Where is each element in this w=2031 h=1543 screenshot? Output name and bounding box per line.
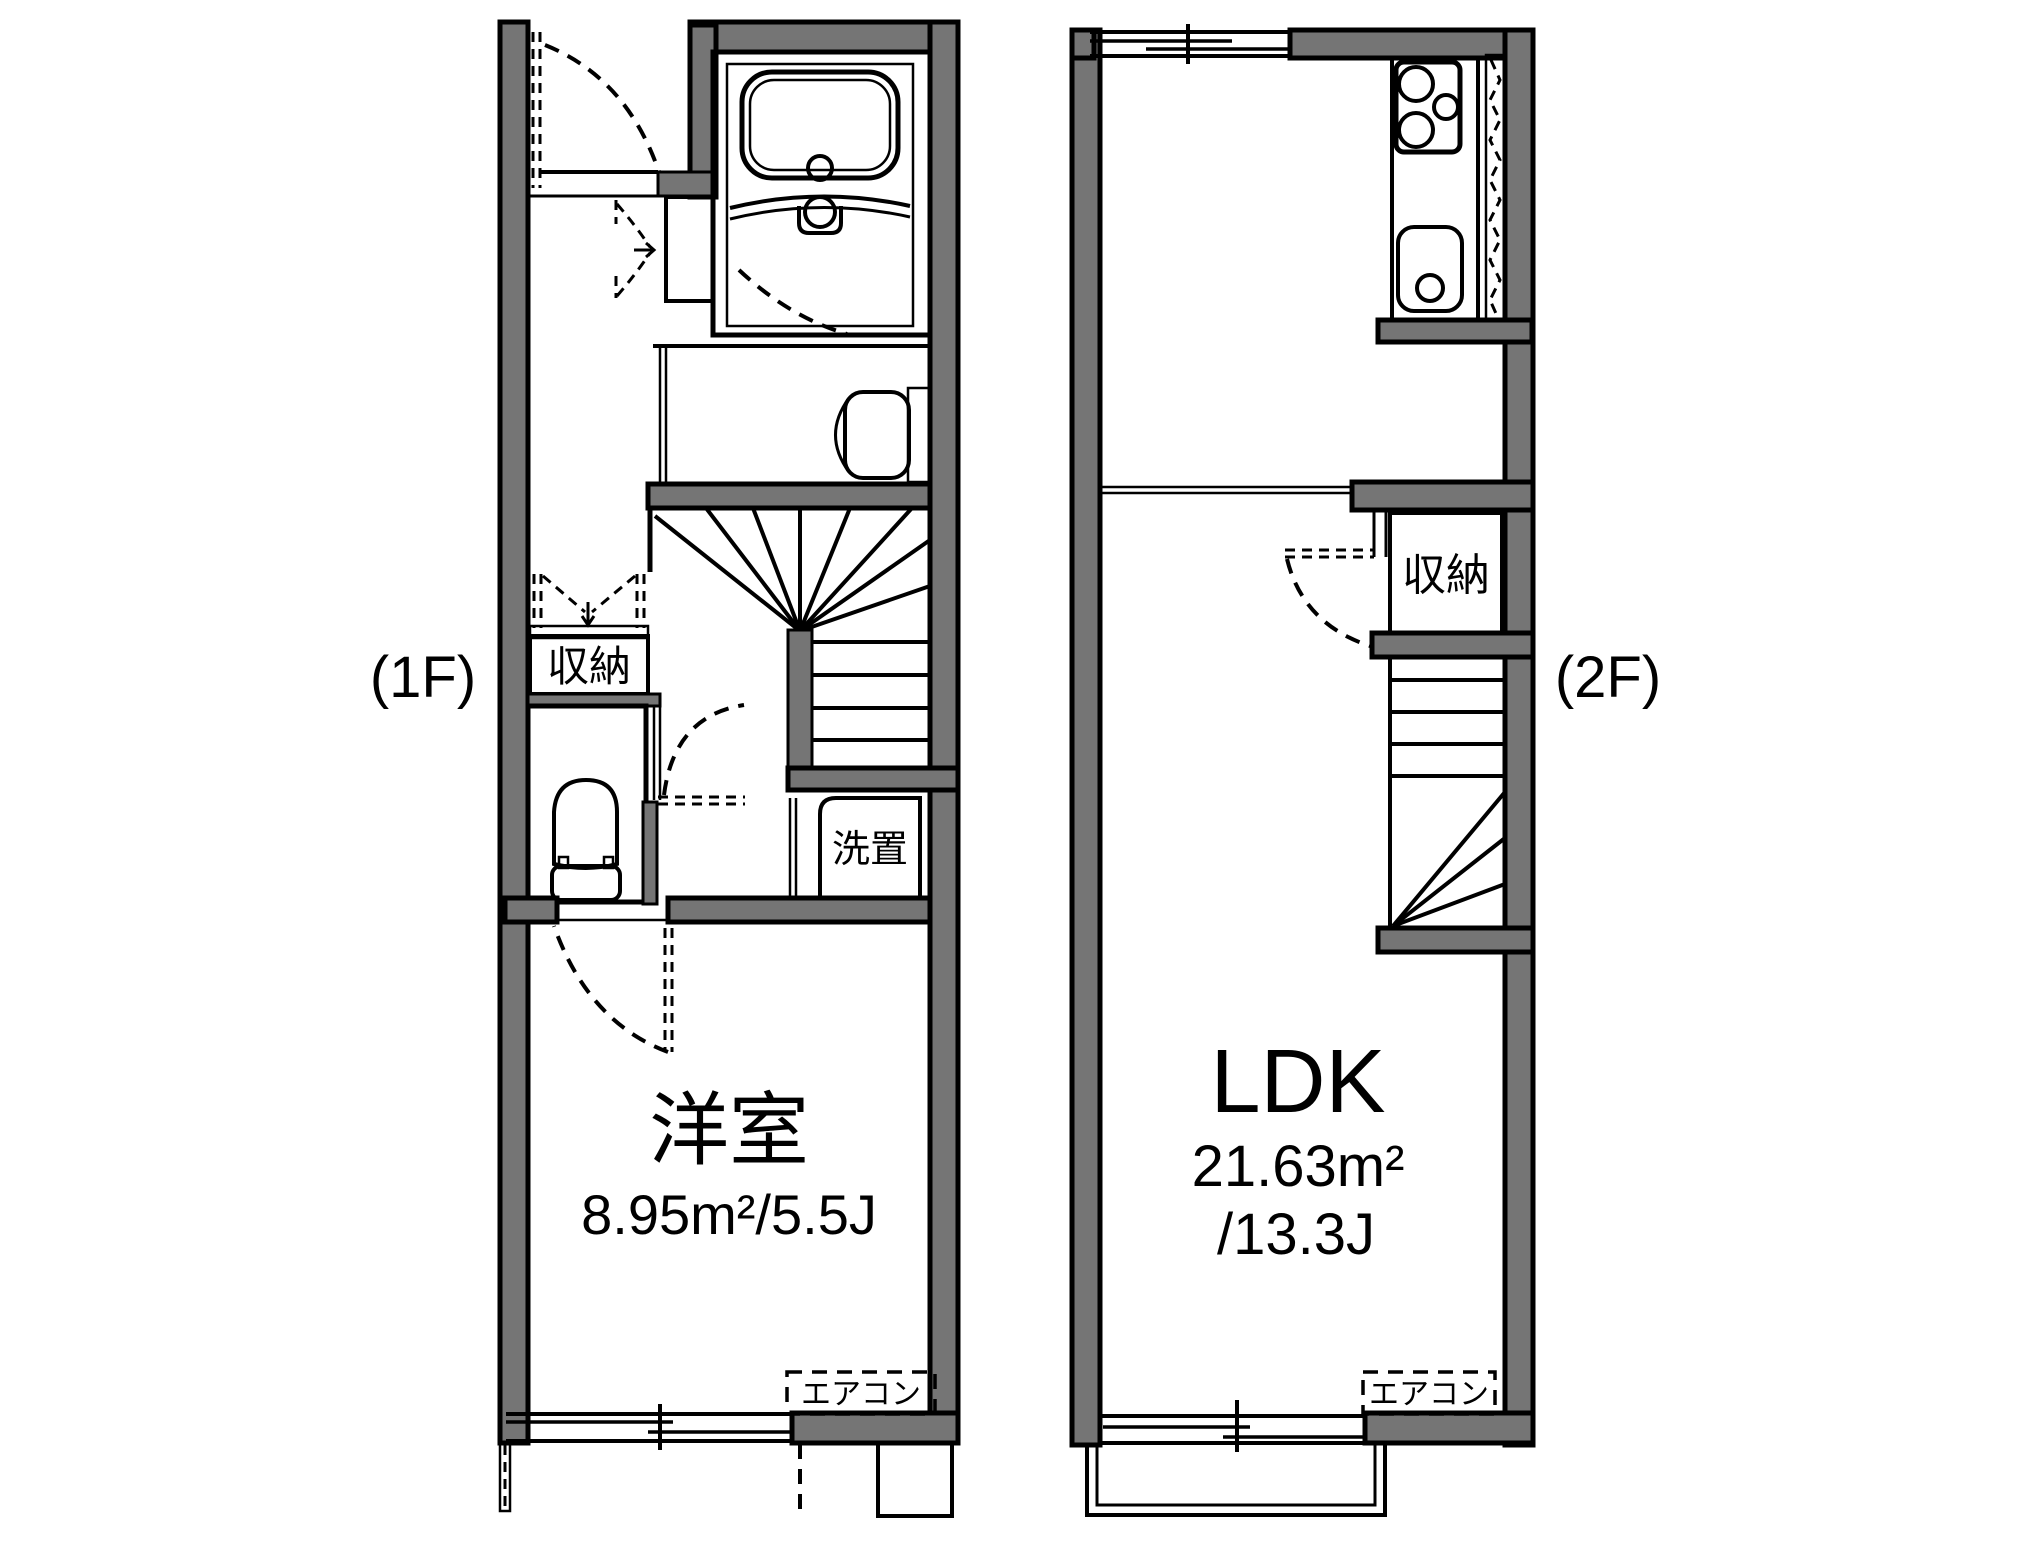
stair-winder-lines bbox=[655, 508, 930, 631]
floorplan-svg: 収納 洗置 bbox=[0, 0, 2031, 1543]
f1-right-wall bbox=[930, 22, 958, 1443]
floorplan-canvas: 収納 洗置 bbox=[0, 0, 2031, 1543]
duct-space bbox=[1486, 55, 1505, 322]
toilet-room bbox=[528, 706, 660, 904]
bathtub bbox=[742, 72, 898, 180]
storage-1f: 収納 bbox=[528, 574, 660, 706]
toilet bbox=[552, 780, 620, 900]
f2-bottom-wall-right bbox=[1365, 1413, 1533, 1443]
bedroom-door bbox=[554, 926, 672, 1052]
f1-left-wall bbox=[500, 22, 528, 1443]
storage-2f: 収納 bbox=[1285, 510, 1533, 657]
floor2-plan: 収納 LDK 21.63m² /13.3J bbox=[1072, 24, 1661, 1515]
aircon-2f: エアコン bbox=[1363, 1372, 1495, 1414]
bath-unit bbox=[713, 52, 930, 335]
ldk-area-m2: 21.63m² bbox=[1192, 1134, 1405, 1199]
shoe-cabinet bbox=[616, 197, 713, 301]
bedroom: 洋室 8.95m²/5.5J bbox=[554, 926, 877, 1246]
f2-right-wall bbox=[1505, 30, 1533, 1445]
bedroom-label: 洋室 bbox=[649, 1086, 809, 1175]
f1-bottom-wall-right bbox=[792, 1413, 958, 1443]
f1-site-marks bbox=[500, 1443, 952, 1516]
ldk-room: LDK 21.63m² /13.3J bbox=[1192, 1032, 1405, 1267]
floor2-label: (2F) bbox=[1555, 645, 1661, 710]
window-1f-bottom bbox=[506, 1404, 792, 1450]
stair-treads bbox=[812, 642, 930, 740]
storage-1f-label: 収納 bbox=[547, 643, 631, 690]
storage-2f-label: 収納 bbox=[1402, 551, 1490, 600]
floor1-plan: 収納 洗置 bbox=[370, 22, 958, 1516]
ldk-area-j: /13.3J bbox=[1217, 1202, 1375, 1267]
washbasin bbox=[836, 388, 931, 482]
washroom-door bbox=[658, 705, 745, 804]
kitchen-bottom-wall bbox=[1378, 320, 1532, 342]
bath-door-arc bbox=[739, 270, 847, 334]
stove bbox=[1396, 62, 1460, 152]
window-2f-top bbox=[1090, 24, 1290, 64]
f2-top-wall-left bbox=[1072, 30, 1094, 58]
entrance-step bbox=[528, 172, 714, 196]
ldk-partition bbox=[1100, 482, 1533, 510]
f2-left-wall bbox=[1072, 30, 1100, 1445]
laundry-label: 洗置 bbox=[832, 829, 908, 871]
bedroom-area: 8.95m²/5.5J bbox=[581, 1183, 877, 1246]
laundry-space: 洗置 bbox=[790, 798, 920, 898]
aircon-2f-label: エアコン bbox=[1369, 1378, 1489, 1411]
entrance-door bbox=[533, 32, 659, 188]
ldk-label: LDK bbox=[1210, 1032, 1385, 1132]
f1-top-wall bbox=[690, 22, 958, 52]
kitchen-sink bbox=[1398, 227, 1462, 311]
aircon-1f-label: エアコン bbox=[801, 1378, 921, 1411]
stair-post bbox=[788, 630, 812, 775]
balcony bbox=[1087, 1445, 1385, 1515]
bath-faucet bbox=[799, 197, 841, 233]
floor1-label: (1F) bbox=[370, 645, 476, 710]
staircase-1f bbox=[648, 484, 958, 790]
window-2f-bottom bbox=[1100, 1400, 1365, 1452]
storage-2f-door bbox=[1285, 550, 1374, 646]
aircon-1f: エアコン bbox=[787, 1372, 935, 1414]
